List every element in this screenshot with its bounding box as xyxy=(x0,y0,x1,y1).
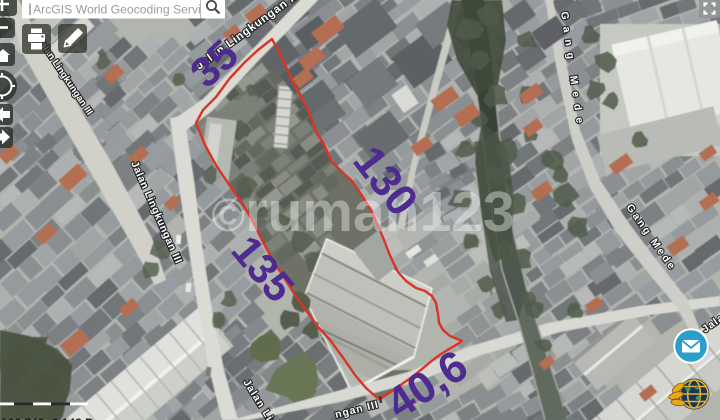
svg-text:ArcGIS World Geocoding Service: ArcGIS World Geocoding Service xyxy=(33,3,214,17)
svg-text:106.743 -6.148 Degrees: 106.743 -6.148 Degrees xyxy=(1,416,133,420)
